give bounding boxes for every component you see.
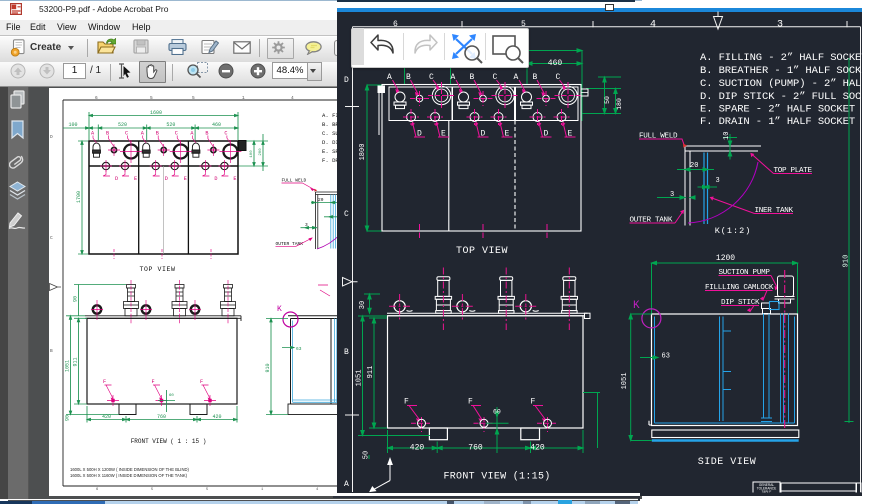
svg-text:A: A — [387, 73, 392, 82]
svg-text:C: C — [556, 73, 561, 82]
svg-text:D: D — [544, 130, 549, 139]
svg-text:E: E — [568, 130, 573, 139]
svg-text:D: D — [481, 130, 486, 139]
svg-text:E: E — [505, 130, 510, 139]
svg-text:B: B — [406, 73, 411, 82]
svg-text:420: 420 — [410, 444, 425, 453]
svg-text:63: 63 — [662, 353, 670, 361]
svg-text:F: F — [404, 398, 409, 407]
svg-text:D. DIP STICK - 2” FULL SOCKET: D. DIP STICK - 2” FULL SOCKET — [700, 91, 880, 103]
svg-text:1051: 1051 — [621, 373, 629, 390]
svg-text:B. BREATHER - 1” HALF SOCKET: B. BREATHER - 1” HALF SOCKET — [700, 65, 874, 77]
svg-text:E. SPARE - 2” HALF SOCKET: E. SPARE - 2” HALF SOCKET — [700, 104, 855, 116]
svg-text:1800: 1800 — [359, 144, 367, 161]
svg-text:760: 760 — [468, 444, 483, 453]
svg-text:K(1:2): K(1:2) — [715, 226, 752, 236]
svg-text:3: 3 — [670, 191, 674, 199]
svg-text:B: B — [344, 348, 349, 357]
svg-text:E: E — [441, 130, 446, 139]
svg-text:420: 420 — [530, 444, 545, 453]
svg-text:10: 10 — [723, 132, 731, 140]
svg-text:B: B — [533, 73, 538, 82]
svg-text:3: 3 — [716, 177, 720, 185]
svg-text:911: 911 — [367, 366, 375, 379]
svg-text:460: 460 — [548, 59, 563, 68]
svg-text:60: 60 — [493, 409, 501, 416]
svg-text:TOP VIEW: TOP VIEW — [456, 246, 508, 257]
svg-text:FRONT VIEW (1:15): FRONT VIEW (1:15) — [443, 471, 550, 483]
svg-text:910: 910 — [843, 255, 851, 268]
svg-text:F. DRAIN - 1” HALF SOCKET: F. DRAIN - 1” HALF SOCKET — [700, 116, 855, 128]
svg-text:A. FILLING - 2” HALF SOCKET: A. FILLING - 2” HALF SOCKET — [700, 52, 867, 64]
svg-text:C: C — [429, 73, 434, 82]
svg-text:A: A — [514, 73, 519, 82]
svg-text:C: C — [493, 73, 498, 82]
svg-text:B: B — [470, 73, 475, 82]
svg-text:D: D — [417, 130, 422, 139]
svg-text:A: A — [451, 73, 456, 82]
svg-text:K: K — [633, 300, 640, 312]
svg-text:50: 50 — [604, 96, 611, 104]
svg-text:180: 180 — [616, 98, 623, 110]
svg-text:4: 4 — [650, 20, 656, 31]
svg-text:F: F — [531, 398, 536, 407]
svg-text:F: F — [468, 398, 473, 407]
svg-text:D: D — [344, 76, 349, 85]
svg-text:20: 20 — [690, 162, 698, 170]
svg-text:3: 3 — [777, 20, 783, 31]
svg-text:SIDE VIEW: SIDE VIEW — [698, 457, 757, 468]
svg-text:1051: 1051 — [356, 370, 364, 387]
svg-text:1200: 1200 — [716, 254, 735, 263]
svg-text:C. SUCTION (PUMP) - 2” HALF: C. SUCTION (PUMP) - 2” HALF — [700, 78, 867, 90]
svg-text:C: C — [344, 210, 349, 219]
svg-text:A: A — [344, 480, 349, 489]
svg-text:30: 30 — [359, 301, 367, 309]
